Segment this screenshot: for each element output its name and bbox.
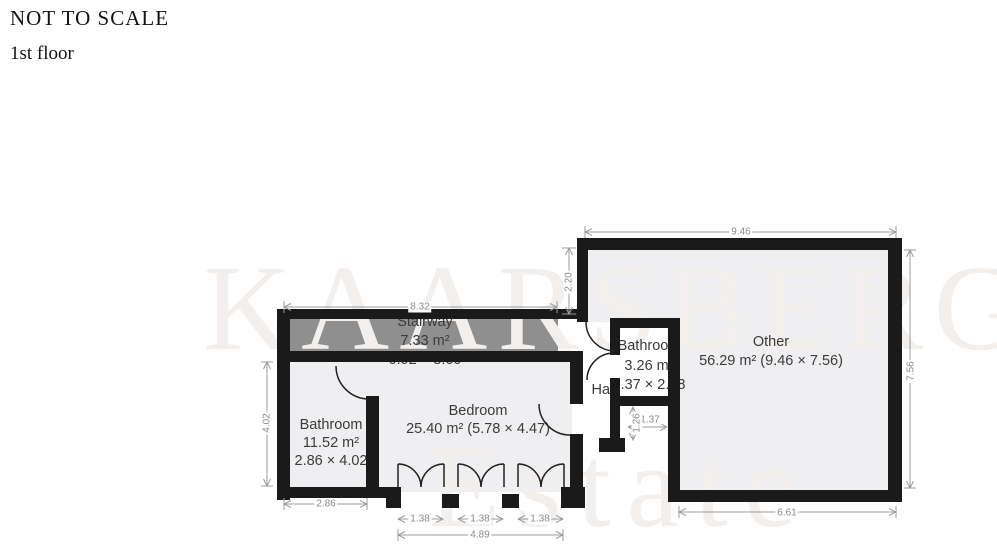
dim-other-bottom: 6.61 xyxy=(775,508,798,519)
dim-nook-height: 1.26 xyxy=(632,411,643,434)
dimension-labels-layer: 8.32 2.20 9.46 7.56 6.61 2.86 4.02 1.38 … xyxy=(0,0,997,544)
dim-doors-total: 4.89 xyxy=(468,530,491,541)
dim-door-3: 1.38 xyxy=(528,514,551,525)
not-to-scale-text: NOT TO SCALE xyxy=(10,6,169,31)
plan-header: NOT TO SCALE 1st floor xyxy=(10,6,169,65)
dim-bathroom-left-width: 2.86 xyxy=(314,499,337,510)
dim-other-right-height: 7.56 xyxy=(906,359,917,382)
dim-bathroom-left-height: 4.02 xyxy=(262,411,273,434)
dim-door-1: 1.38 xyxy=(408,514,431,525)
dim-other-left-height: 2.20 xyxy=(564,270,575,293)
floor-name-text: 1st floor xyxy=(10,43,169,65)
floor-plan-canvas: KAARSBERG Estate Stairway 7.33 m² 0.92 ×… xyxy=(0,0,997,544)
dim-other-top: 9.46 xyxy=(729,227,752,238)
dim-door-2: 1.38 xyxy=(468,514,491,525)
dim-stairway-top: 8.32 xyxy=(408,302,431,313)
